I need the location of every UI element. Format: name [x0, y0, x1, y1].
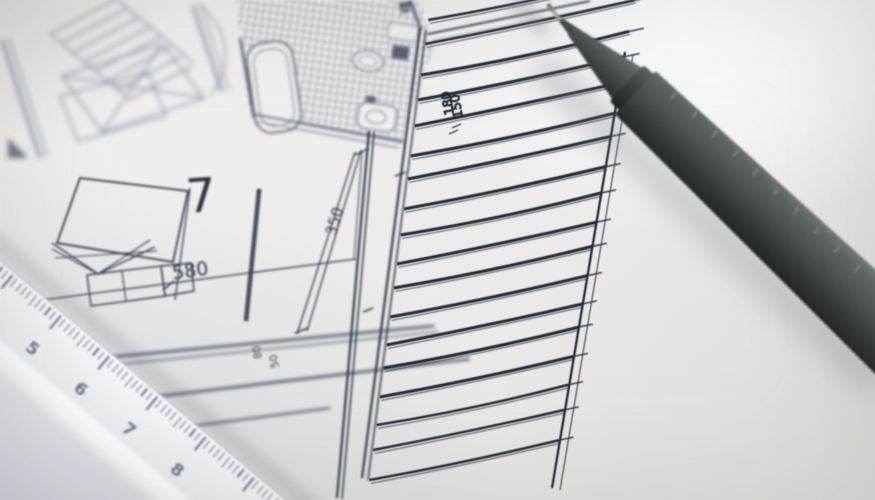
ruler-tick	[232, 465, 239, 473]
bathroom-drawing	[206, 0, 440, 188]
ruler-tick	[237, 469, 244, 477]
ruler-tick	[208, 445, 215, 453]
ruler-tick	[58, 319, 65, 327]
dim-580-label: 580	[171, 258, 210, 285]
ruler-tick	[261, 489, 268, 497]
ruler-tick	[256, 485, 263, 493]
bathtub	[245, 39, 303, 135]
ruler-tick	[116, 368, 123, 376]
ruler-tick	[189, 429, 196, 437]
ruler-tick	[0, 271, 7, 279]
ruler-tick	[227, 461, 234, 469]
ruler-tick	[140, 388, 147, 396]
ruler-tick	[160, 404, 167, 412]
ruler-tick	[121, 372, 128, 380]
ruler-tick	[20, 287, 27, 295]
ruler-tick	[15, 283, 22, 291]
ruler-tick	[39, 303, 46, 311]
ruler-tick	[25, 291, 32, 299]
ruler-tick	[266, 493, 273, 500]
ruler-tick	[34, 299, 41, 307]
wall-label-50: 50	[268, 354, 282, 369]
room-number-label: 7	[184, 168, 218, 225]
ruler-tick	[83, 339, 90, 347]
deck-label-150: 150	[447, 93, 466, 119]
ruler-tick	[10, 279, 17, 287]
ruler-tick	[73, 331, 80, 339]
ruler-tick	[242, 473, 249, 481]
ruler-tick	[63, 323, 70, 331]
ruler-tick	[155, 400, 162, 408]
toilet	[356, 101, 397, 132]
ruler-tick	[165, 408, 172, 416]
ruler-tick	[107, 360, 114, 368]
stairs-drawing	[2, 0, 229, 158]
ruler-tick	[251, 481, 258, 489]
dim-350-label: 350	[322, 205, 347, 237]
ruler-tick	[87, 344, 94, 352]
ruler-tick	[44, 307, 51, 315]
ruler-tick	[97, 352, 104, 360]
wall-label-80: 80	[251, 345, 265, 360]
ruler-tick	[218, 453, 225, 461]
ruler-tick	[136, 384, 143, 392]
ruler-tick	[111, 364, 118, 372]
ruler-tick	[92, 348, 99, 356]
ruler-tick	[194, 433, 201, 441]
ruler-tick	[179, 420, 186, 428]
door-leaf	[246, 191, 259, 321]
ruler-tick	[68, 327, 75, 335]
ruler-tick	[203, 441, 210, 449]
ruler-tick	[213, 449, 220, 457]
ruler-tick	[49, 311, 56, 319]
ruler-tick	[145, 392, 152, 400]
bed-outline	[57, 178, 188, 262]
ruler-tick	[131, 380, 138, 388]
ruler-tick	[169, 412, 176, 420]
photo-stage: 7 580 350 80 50 1	[0, 0, 875, 500]
ruler-tick	[184, 425, 191, 433]
